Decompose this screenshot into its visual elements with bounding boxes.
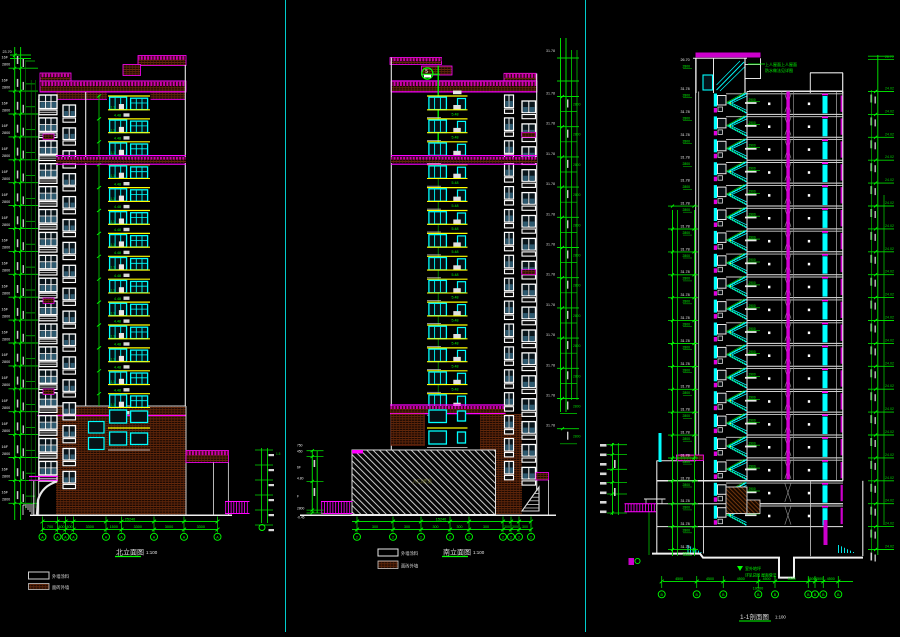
svg-text:300: 300: [522, 525, 528, 529]
svg-text:防水做法见详图: 防水做法见详图: [765, 67, 793, 73]
svg-text:16F: 16F: [2, 239, 9, 243]
svg-text:2800: 2800: [683, 323, 691, 327]
svg-text:1.1: 1.1: [111, 243, 116, 247]
svg-text:4.48: 4.48: [114, 274, 121, 278]
svg-text:2800: 2800: [683, 94, 691, 98]
svg-text:2800: 2800: [683, 529, 691, 533]
svg-text:4500: 4500: [737, 577, 745, 581]
svg-text:2900: 2900: [749, 258, 756, 262]
svg-text:1.1: 1.1: [111, 289, 116, 293]
svg-text:2900: 2900: [749, 304, 756, 308]
svg-text:1.1: 1.1: [111, 403, 116, 407]
svg-text:31.78: 31.78: [546, 363, 555, 367]
svg-text:31.78: 31.78: [681, 179, 690, 183]
svg-text:24.02: 24.02: [885, 132, 894, 136]
svg-text:2800: 2800: [2, 154, 10, 158]
svg-text:24.02: 24.02: [885, 545, 894, 549]
svg-text:2900: 2900: [749, 121, 756, 125]
svg-text:1:100: 1:100: [775, 615, 786, 620]
svg-text:3000: 3000: [165, 525, 173, 529]
svg-text:24.02: 24.02: [885, 155, 894, 159]
svg-text:1.1: 1.1: [111, 334, 116, 338]
svg-text:4.48: 4.48: [114, 205, 121, 209]
svg-text:2800: 2800: [683, 300, 691, 304]
svg-text:4.48: 4.48: [114, 137, 121, 141]
svg-text:5.48: 5.48: [452, 227, 459, 231]
svg-text:1.1: 1.1: [111, 357, 116, 361]
svg-text:300: 300: [483, 525, 489, 529]
svg-text:800: 800: [58, 525, 64, 529]
svg-text:16F: 16F: [2, 491, 9, 495]
svg-text:1.1: 1.1: [111, 380, 116, 384]
svg-text:3300: 3300: [134, 525, 142, 529]
svg-text:2800: 2800: [2, 246, 10, 250]
svg-text:19500: 19500: [753, 587, 764, 591]
svg-text:1.1: 1.1: [111, 197, 116, 201]
svg-text:2900: 2900: [749, 235, 756, 239]
svg-text:31.78: 31.78: [681, 476, 690, 480]
svg-text:750: 750: [297, 444, 303, 448]
svg-text:外墙涂料: 外墙涂料: [52, 573, 70, 580]
svg-text:31.78: 31.78: [681, 87, 690, 91]
svg-text:上人屋面上人屋面: 上人屋面上人屋面: [765, 61, 797, 67]
svg-text:31.78: 31.78: [546, 152, 555, 156]
svg-text:室外地坪: 室外地坪: [745, 565, 761, 571]
svg-text:16F: 16F: [2, 445, 9, 449]
svg-text:16F: 16F: [2, 147, 9, 151]
svg-text:31.78: 31.78: [546, 49, 555, 53]
svg-text:31.78: 31.78: [546, 92, 555, 96]
svg-text:2: 2: [510, 535, 512, 539]
svg-text:2800: 2800: [683, 139, 691, 143]
svg-text:F: F: [297, 495, 299, 499]
svg-text:2800: 2800: [2, 498, 10, 502]
svg-text:4500: 4500: [706, 577, 714, 581]
svg-text:2: 2: [468, 535, 470, 539]
svg-text:700: 700: [47, 525, 53, 529]
svg-text:入口坡道: 入口坡道: [412, 478, 432, 485]
svg-text:4.48: 4.48: [114, 297, 121, 301]
svg-text:5.48: 5.48: [452, 181, 459, 185]
svg-text:2800: 2800: [2, 429, 10, 433]
svg-text:24.02: 24.02: [885, 499, 894, 503]
svg-text:4.48: 4.48: [114, 388, 121, 392]
svg-text:31.78: 31.78: [546, 182, 555, 186]
svg-text:2: 2: [420, 535, 422, 539]
svg-text:31.78: 31.78: [681, 293, 690, 297]
svg-text:2800: 2800: [2, 406, 10, 410]
svg-text:24.02: 24.02: [885, 316, 894, 320]
svg-text:24.02: 24.02: [885, 293, 894, 297]
svg-text:2800: 2800: [2, 452, 10, 456]
svg-text:300: 300: [404, 525, 410, 529]
svg-text:5.48: 5.48: [452, 250, 459, 254]
svg-text:2800: 2800: [683, 391, 691, 395]
svg-text:4.80: 4.80: [297, 477, 304, 481]
svg-text:2800: 2800: [2, 337, 10, 341]
svg-text:31.78: 31.78: [546, 333, 555, 337]
svg-text:2800: 2800: [297, 507, 305, 511]
svg-text:24.02: 24.02: [885, 247, 894, 251]
svg-text:2900: 2900: [749, 396, 756, 400]
svg-text:24.02: 24.02: [885, 384, 894, 388]
svg-text:4500: 4500: [788, 577, 796, 581]
svg-text:5.48: 5.48: [452, 364, 459, 368]
svg-text:2800: 2800: [683, 116, 691, 120]
svg-text:2800: 2800: [573, 405, 581, 409]
svg-text:4500: 4500: [827, 577, 835, 581]
svg-text:2800: 2800: [2, 475, 10, 479]
svg-text:300: 300: [457, 525, 463, 529]
svg-text:2800: 2800: [683, 414, 691, 418]
svg-text:1:100: 1:100: [473, 550, 485, 555]
svg-text:4.48: 4.48: [114, 182, 121, 186]
svg-text:16F: 16F: [2, 170, 9, 174]
svg-text:31.78: 31.78: [681, 453, 690, 457]
svg-text:24.02: 24.02: [885, 407, 894, 411]
svg-text:31.78: 31.78: [681, 110, 690, 114]
svg-text:4.48: 4.48: [114, 114, 121, 118]
svg-text:1:100: 1:100: [146, 550, 158, 555]
svg-text:1.1: 1.1: [111, 174, 116, 178]
svg-text:24.02: 24.02: [885, 453, 894, 457]
svg-text:2900: 2900: [749, 464, 756, 468]
svg-text:1.1: 1.1: [111, 312, 116, 316]
svg-text:31.78: 31.78: [546, 424, 555, 428]
svg-text:16F: 16F: [2, 216, 9, 220]
svg-text:16F: 16F: [2, 285, 9, 289]
svg-text:300: 300: [512, 525, 518, 529]
svg-text:300: 300: [372, 525, 378, 529]
svg-text:31.78: 31.78: [681, 133, 690, 137]
svg-text:2: 2: [449, 535, 451, 539]
svg-text:4500: 4500: [675, 577, 683, 581]
svg-text:24.02: 24.02: [885, 430, 894, 434]
svg-text:5.48: 5.48: [452, 296, 459, 300]
svg-text:31.78: 31.78: [681, 499, 690, 503]
svg-text:31.78: 31.78: [681, 156, 690, 160]
svg-text:16F: 16F: [2, 56, 9, 60]
svg-text:15240: 15240: [436, 517, 447, 521]
svg-text:1.5: 1.5: [276, 452, 281, 456]
svg-text:2900: 2900: [749, 144, 756, 148]
svg-text:24.02: 24.02: [885, 224, 894, 228]
svg-text:16F: 16F: [2, 307, 9, 311]
svg-text:2900: 2900: [749, 373, 756, 377]
svg-text:2800: 2800: [2, 292, 10, 296]
svg-text:24.02: 24.02: [885, 476, 894, 480]
svg-text:4.48: 4.48: [114, 320, 121, 324]
svg-text:2800: 2800: [683, 368, 691, 372]
svg-text:16F: 16F: [2, 262, 9, 266]
svg-text:31.78: 31.78: [546, 394, 555, 398]
svg-text:23.70: 23.70: [3, 50, 12, 54]
svg-text:2900: 2900: [749, 441, 756, 445]
svg-text:31.78: 31.78: [681, 431, 690, 435]
svg-text:2800: 2800: [2, 63, 10, 67]
svg-text:2800: 2800: [683, 506, 691, 510]
svg-text:31.78: 31.78: [681, 202, 690, 206]
svg-text:2: 2: [502, 535, 504, 539]
svg-text:4.48: 4.48: [114, 343, 121, 347]
svg-text:2800: 2800: [2, 314, 10, 318]
svg-text:2800: 2800: [2, 108, 10, 112]
svg-text:3300: 3300: [197, 525, 205, 529]
svg-text:31.78: 31.78: [681, 247, 690, 251]
svg-text:16F: 16F: [2, 468, 9, 472]
svg-text:26.70: 26.70: [885, 55, 894, 59]
svg-text:800: 800: [66, 525, 72, 529]
svg-text:外墙涂料: 外墙涂料: [401, 550, 419, 557]
svg-text:2800: 2800: [683, 437, 691, 441]
svg-text:4.48: 4.48: [114, 228, 121, 232]
svg-text:2800: 2800: [683, 208, 691, 212]
svg-text:2800: 2800: [2, 200, 10, 204]
svg-text:31.78: 31.78: [546, 273, 555, 277]
svg-text:2900: 2900: [749, 281, 756, 285]
svg-text:31.78: 31.78: [681, 408, 690, 412]
svg-text:2800: 2800: [2, 223, 10, 227]
svg-text:2900: 2900: [749, 487, 756, 491]
svg-text:16F: 16F: [2, 78, 9, 82]
svg-text:3300: 3300: [86, 525, 94, 529]
svg-text:4.48: 4.48: [114, 366, 121, 370]
svg-text:16F: 16F: [2, 193, 9, 197]
svg-text:2: 2: [356, 535, 358, 539]
svg-text:31.78: 31.78: [681, 270, 690, 274]
svg-text:2800: 2800: [683, 345, 691, 349]
svg-text:16F: 16F: [2, 353, 9, 357]
svg-text:2: 2: [530, 535, 532, 539]
svg-text:31.78: 31.78: [546, 122, 555, 126]
svg-text:2800: 2800: [2, 383, 10, 387]
svg-text:5.48: 5.48: [452, 342, 459, 346]
svg-text:2900: 2900: [749, 327, 756, 331]
svg-text:2800: 2800: [573, 435, 581, 439]
svg-text:16F: 16F: [2, 376, 9, 380]
svg-text:24.02: 24.02: [885, 178, 894, 182]
svg-text:-0.45: -0.45: [297, 516, 305, 520]
svg-text:31.78: 31.78: [681, 545, 690, 549]
svg-text:2: 2: [392, 535, 394, 539]
svg-text:16F: 16F: [2, 422, 9, 426]
svg-text:2: 2: [518, 535, 520, 539]
svg-text:5.48: 5.48: [452, 319, 459, 323]
svg-text:16F: 16F: [2, 330, 9, 334]
svg-text:300: 300: [433, 525, 439, 529]
svg-text:31.78: 31.78: [681, 522, 690, 526]
svg-text:31.78: 31.78: [681, 224, 690, 228]
svg-text:南立面图: 南立面图: [443, 548, 471, 557]
svg-text:4500: 4500: [763, 577, 771, 581]
svg-text:24.02: 24.02: [885, 109, 894, 113]
svg-text:1.1: 1.1: [111, 151, 116, 155]
svg-text:2800: 2800: [2, 269, 10, 273]
svg-text:1.1: 1.1: [111, 266, 116, 270]
svg-text:2800: 2800: [683, 254, 691, 258]
svg-text:2800: 2800: [2, 85, 10, 89]
svg-text:450: 450: [297, 450, 303, 454]
svg-text:26.70: 26.70: [681, 58, 690, 62]
svg-text:24.02: 24.02: [885, 361, 894, 365]
svg-text:16F: 16F: [2, 399, 9, 403]
svg-text:4500: 4500: [815, 577, 823, 581]
svg-text:2800: 2800: [683, 231, 691, 235]
svg-text:1500: 1500: [110, 525, 118, 529]
svg-text:1.1: 1.1: [111, 105, 116, 109]
svg-text:2900: 2900: [749, 212, 756, 216]
svg-text:31.78: 31.78: [681, 385, 690, 389]
svg-text:5.48: 5.48: [452, 204, 459, 208]
svg-text:北立面图: 北立面图: [116, 548, 144, 557]
svg-text:31.78: 31.78: [681, 316, 690, 320]
svg-text:2900: 2900: [749, 167, 756, 171]
svg-text:31.78: 31.78: [546, 303, 555, 307]
svg-text:2800: 2800: [683, 460, 691, 464]
svg-text:2800: 2800: [683, 483, 691, 487]
svg-text:2900: 2900: [749, 98, 756, 102]
svg-text:24.02: 24.02: [885, 201, 894, 205]
svg-text:24.02: 24.02: [885, 522, 894, 526]
svg-text:2800: 2800: [2, 131, 10, 135]
svg-text:5.48: 5.48: [452, 387, 459, 391]
svg-text:2800: 2800: [683, 552, 691, 556]
svg-text:2800: 2800: [683, 277, 691, 281]
svg-text:24.02: 24.02: [885, 338, 894, 342]
svg-text:2800: 2800: [683, 185, 691, 189]
svg-text:2800: 2800: [2, 177, 10, 181]
svg-text:300: 300: [504, 525, 510, 529]
svg-text:31.78: 31.78: [546, 212, 555, 216]
svg-text:2900: 2900: [749, 419, 756, 423]
svg-text:16F: 16F: [2, 101, 9, 105]
svg-text:6F: 6F: [297, 466, 301, 470]
svg-text:5.48: 5.48: [452, 273, 459, 277]
svg-text:面砖外墙: 面砖外墙: [401, 563, 419, 570]
svg-text:16F: 16F: [2, 124, 9, 128]
svg-text:1-1剖面图: 1-1剖面图: [740, 612, 769, 621]
svg-text:25240: 25240: [125, 517, 136, 521]
svg-text:2800: 2800: [683, 65, 691, 69]
svg-text:详见总图 屋面做法: 详见总图 屋面做法: [745, 573, 777, 578]
svg-text:31.78: 31.78: [681, 339, 690, 343]
svg-text:2900: 2900: [749, 190, 756, 194]
svg-text:2800: 2800: [683, 162, 691, 166]
svg-text:4.48: 4.48: [114, 251, 121, 255]
svg-text:31.78: 31.78: [681, 362, 690, 366]
svg-text:31.78: 31.78: [546, 243, 555, 247]
svg-text:2900: 2900: [749, 350, 756, 354]
svg-text:5.48: 5.48: [452, 113, 459, 117]
svg-text:2800: 2800: [2, 360, 10, 364]
svg-text:24.02: 24.02: [885, 87, 894, 91]
svg-text:面砖外墙: 面砖外墙: [52, 584, 70, 591]
svg-text:1.1: 1.1: [111, 128, 116, 132]
svg-text:5.48: 5.48: [452, 135, 459, 139]
svg-text:24.02: 24.02: [885, 270, 894, 274]
svg-text:1.1: 1.1: [111, 220, 116, 224]
